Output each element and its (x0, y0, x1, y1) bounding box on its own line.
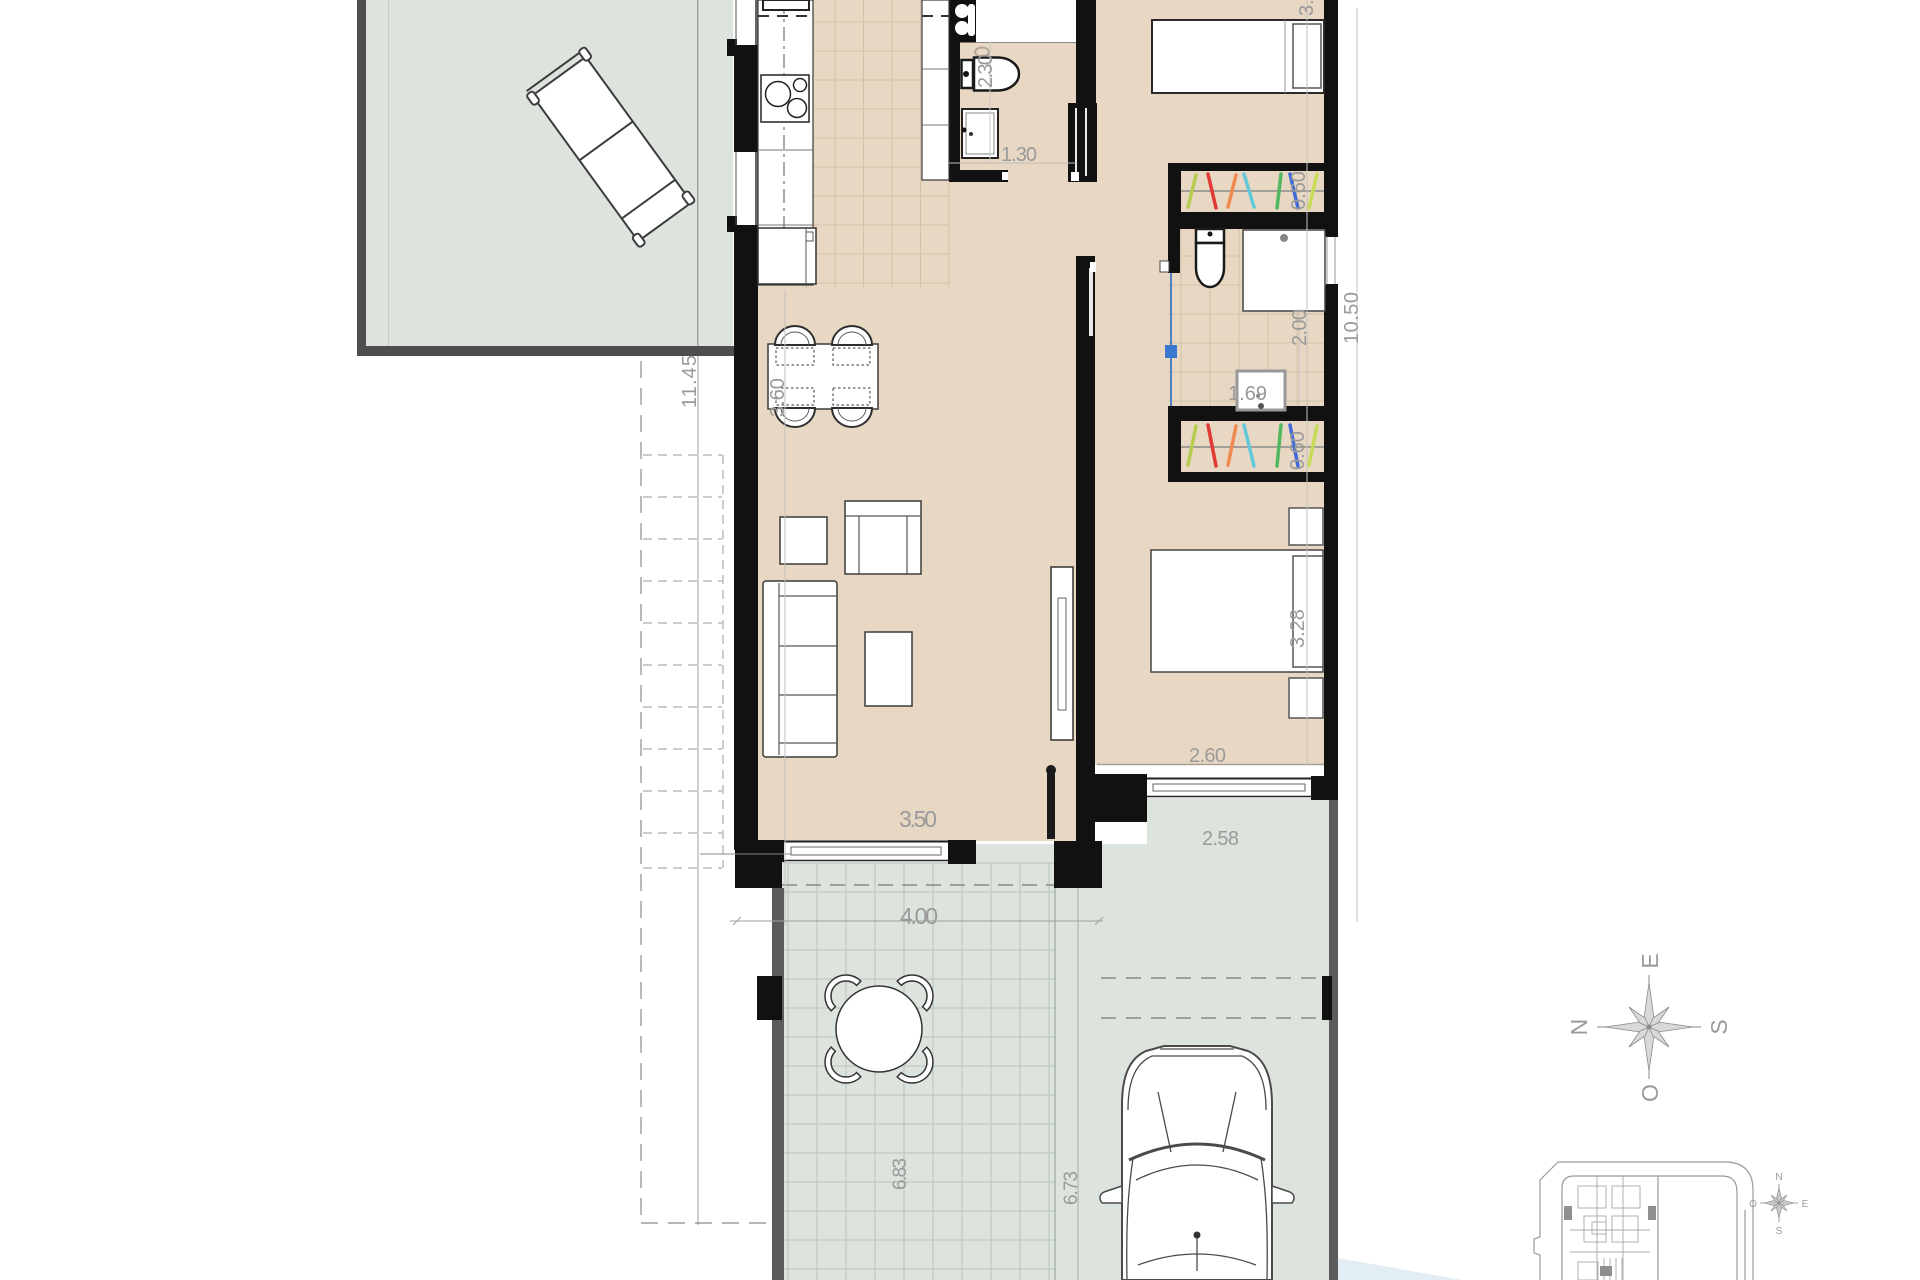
svg-text:4.00: 4.00 (900, 903, 938, 929)
svg-text:2.30: 2.30 (975, 54, 997, 88)
svg-text:3.28: 3.28 (1287, 609, 1309, 648)
svg-text:2.00: 2.00 (1289, 309, 1311, 346)
svg-text:S: S (1706, 1019, 1732, 1034)
svg-text:11.45: 11.45 (679, 355, 701, 408)
svg-text:O: O (1637, 1084, 1663, 1102)
svg-text:3.32: 3.32 (1296, 0, 1318, 16)
svg-text:6.73: 6.73 (1061, 1171, 1082, 1205)
svg-text:N: N (1775, 1172, 1782, 1183)
svg-text:N: N (1566, 1019, 1592, 1036)
svg-text:O: O (1749, 1199, 1757, 1210)
svg-text:0.60: 0.60 (1288, 171, 1310, 210)
svg-text:1.30: 1.30 (1001, 144, 1037, 166)
svg-text:0.60: 0.60 (1287, 431, 1309, 470)
svg-text:2.60: 2.60 (1189, 745, 1226, 767)
svg-text:10.50: 10.50 (1341, 292, 1363, 344)
svg-text:E: E (1802, 1199, 1809, 1210)
svg-text:3.50: 3.50 (899, 806, 937, 832)
svg-text:S: S (1776, 1226, 1783, 1237)
svg-text:3.60: 3.60 (767, 378, 789, 417)
svg-text:E: E (1637, 953, 1663, 968)
svg-text:2.58: 2.58 (1202, 828, 1239, 850)
svg-text:6.83: 6.83 (890, 1158, 911, 1190)
svg-text:1.69: 1.69 (1228, 383, 1267, 405)
